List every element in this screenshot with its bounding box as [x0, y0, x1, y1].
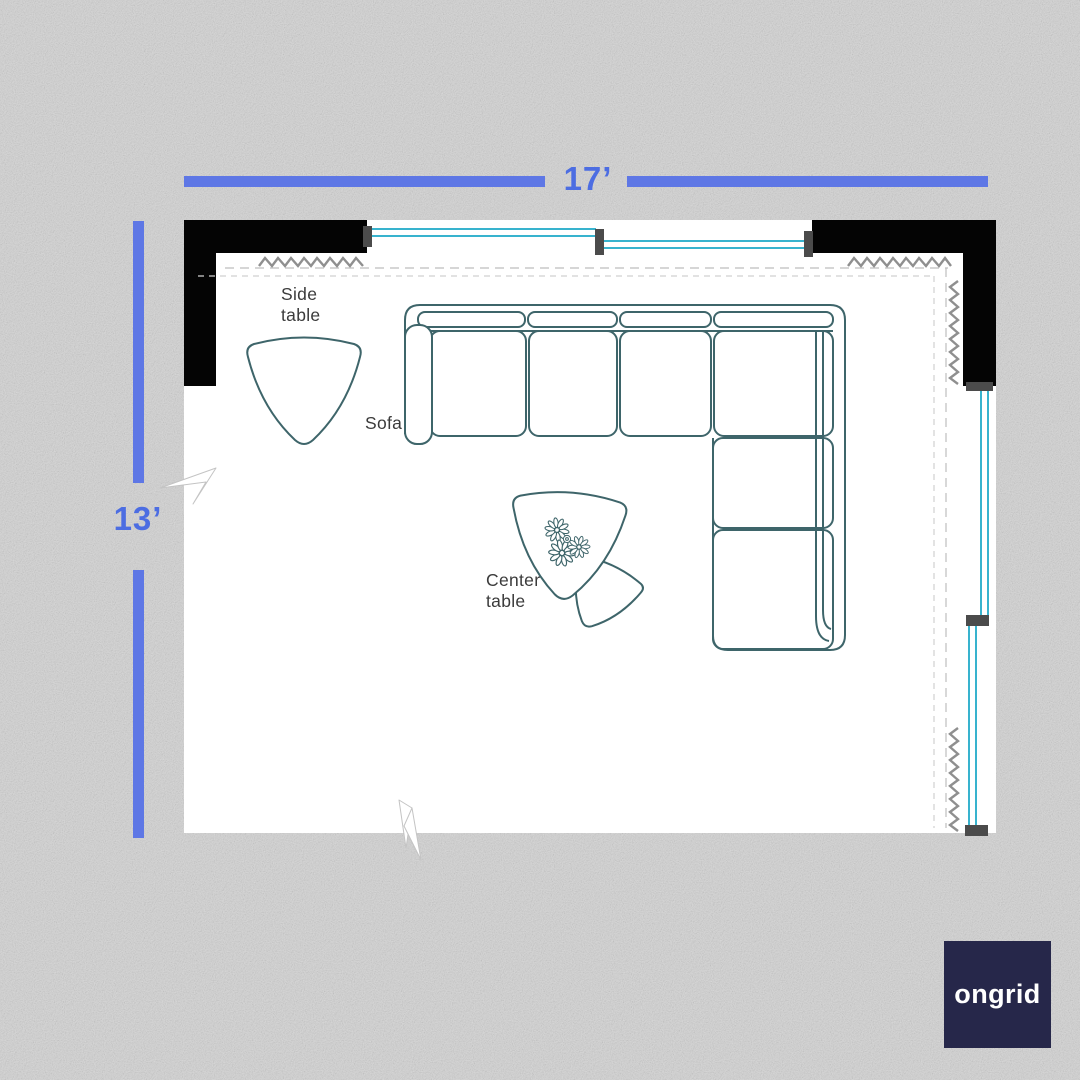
window-mullion: [363, 226, 372, 247]
window-mullion: [965, 825, 988, 836]
dimension-line-top-right-segment: [627, 176, 988, 187]
floor-plan-poster: 17’ 13’: [0, 0, 1080, 1080]
window-top-right: [604, 240, 805, 249]
dimension-line-top-left-segment: [184, 176, 545, 187]
window-mullion: [595, 229, 604, 255]
window-mullion: [804, 231, 813, 257]
wall-top-left-vertical: [184, 220, 216, 386]
window-mullion: [966, 615, 989, 626]
ongrid-logo-text: ongrid: [954, 979, 1040, 1010]
window-mullion: [966, 382, 993, 391]
window-right-upper: [980, 390, 989, 617]
center-table-label: Center table: [486, 570, 560, 612]
window-top-left: [372, 228, 596, 237]
side-table-label: Side table: [281, 284, 345, 326]
dimension-width-label: 17’: [548, 160, 628, 198]
window-right-lower: [968, 626, 977, 827]
wall-top-right-vertical: [963, 220, 996, 386]
dimension-line-left-upper-segment: [133, 221, 144, 483]
sofa-label: Sofa: [365, 413, 402, 434]
ongrid-logo: ongrid: [944, 941, 1051, 1048]
dimension-height-label: 13’: [103, 500, 173, 538]
dimension-line-left-lower-segment: [133, 570, 144, 838]
